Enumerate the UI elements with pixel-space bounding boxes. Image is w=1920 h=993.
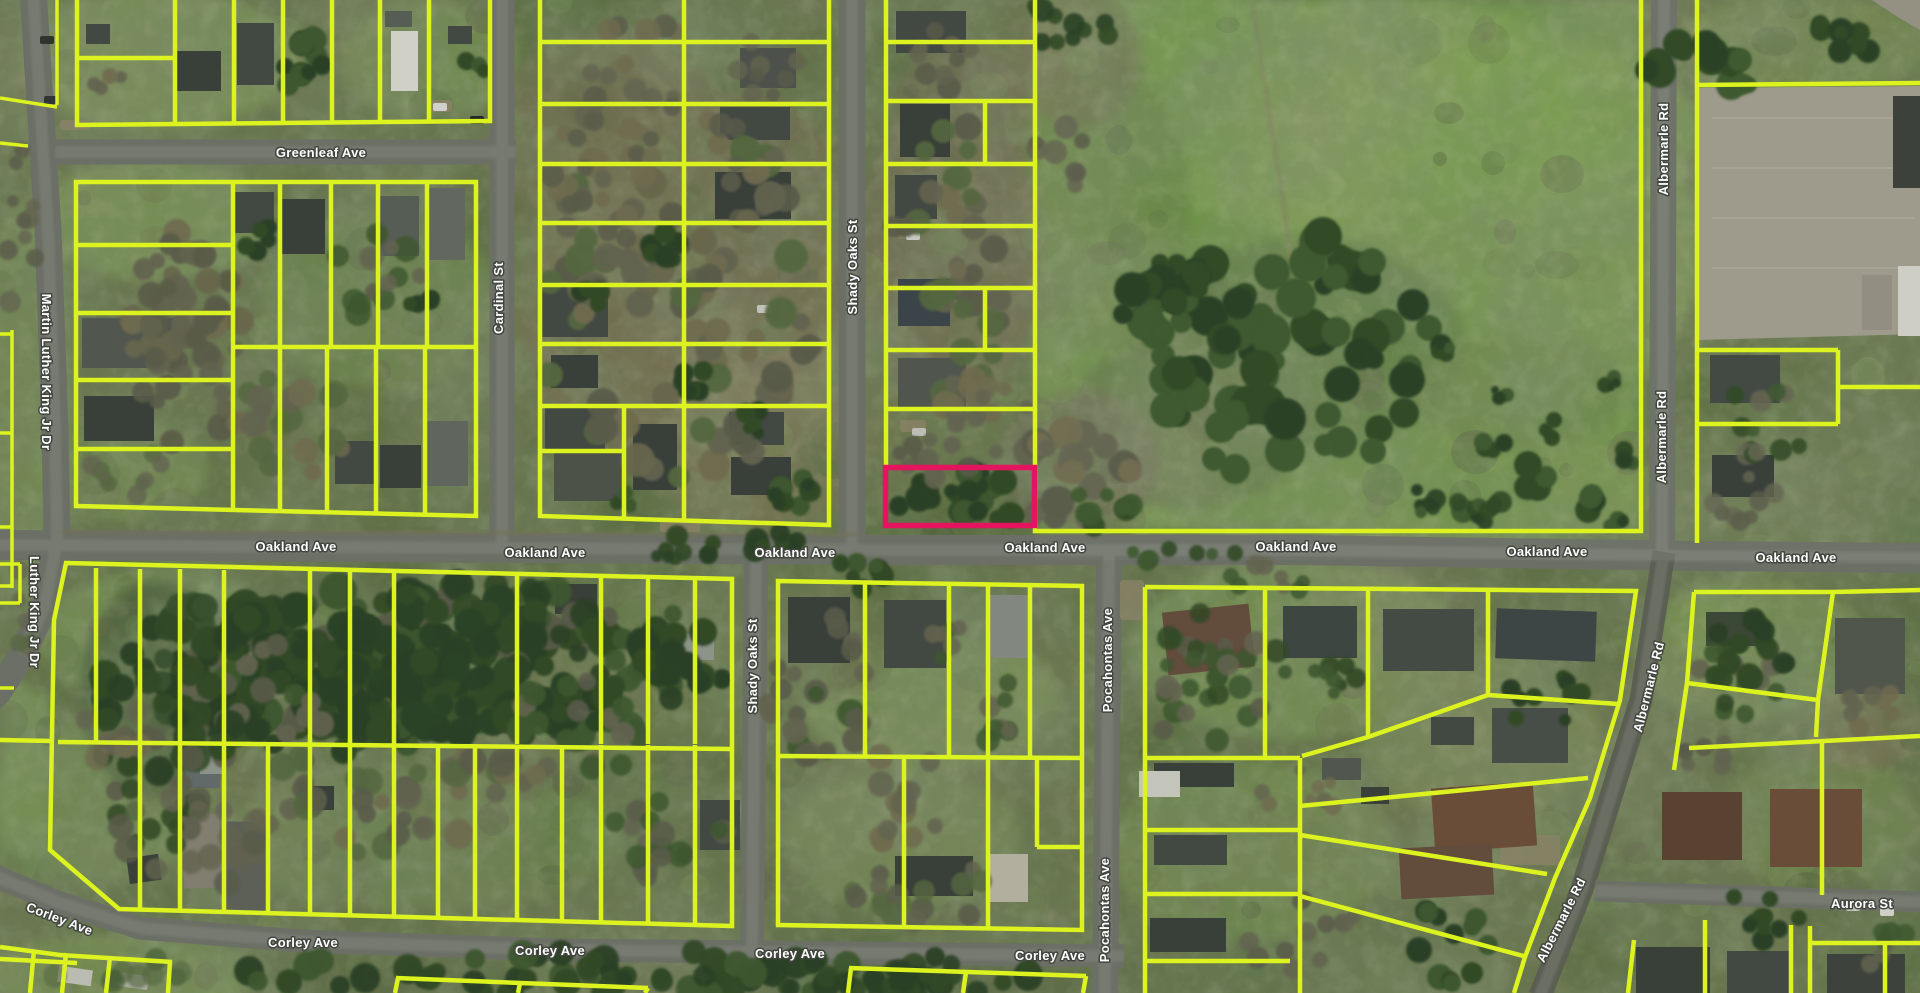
svg-text:Oakland Ave: Oakland Ave — [754, 545, 835, 560]
svg-text:Aurora St: Aurora St — [1831, 896, 1893, 911]
svg-text:Oakland Ave: Oakland Ave — [504, 545, 585, 560]
svg-text:Albermarle Rd: Albermarle Rd — [1654, 391, 1669, 484]
svg-text:Oakland Ave: Oakland Ave — [1255, 539, 1336, 554]
svg-text:Greenleaf Ave: Greenleaf Ave — [276, 145, 366, 160]
svg-text:Martin Luther King Jr Dr: Martin Luther King Jr Dr — [39, 294, 54, 451]
svg-text:Albermarle Rd: Albermarle Rd — [1656, 103, 1671, 196]
svg-text:Pocahontas Ave: Pocahontas Ave — [1100, 608, 1115, 712]
svg-text:Corley Ave: Corley Ave — [268, 935, 338, 950]
svg-text:Luther King Jr Dr: Luther King Jr Dr — [27, 556, 42, 668]
svg-text:Oakland Ave: Oakland Ave — [1506, 544, 1587, 559]
svg-text:Corley Ave: Corley Ave — [755, 946, 825, 961]
svg-text:Cardinal St: Cardinal St — [491, 262, 506, 334]
svg-text:Pocahontas Ave: Pocahontas Ave — [1097, 858, 1112, 962]
svg-text:Corley Ave: Corley Ave — [515, 943, 585, 958]
svg-text:Corley Ave: Corley Ave — [1015, 948, 1085, 963]
svg-text:Shady Oaks St: Shady Oaks St — [745, 618, 760, 713]
svg-text:Oakland Ave: Oakland Ave — [1004, 540, 1085, 555]
svg-text:Oakland Ave: Oakland Ave — [1755, 550, 1836, 565]
svg-text:Shady Oaks St: Shady Oaks St — [845, 219, 860, 314]
svg-text:Oakland Ave: Oakland Ave — [255, 539, 336, 554]
